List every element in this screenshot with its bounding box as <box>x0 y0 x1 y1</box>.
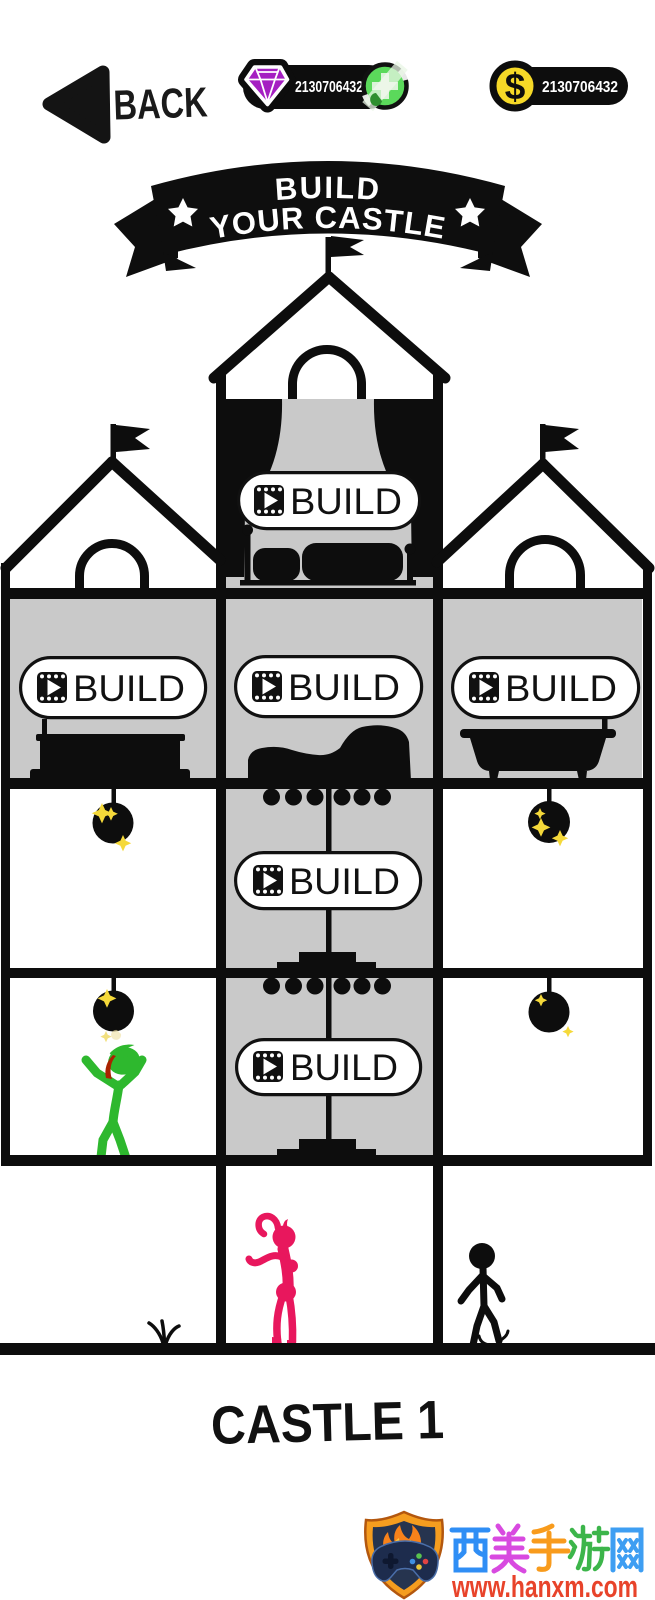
svg-text:$: $ <box>505 66 526 107</box>
svg-text:www.hanxm.com: www.hanxm.com <box>451 1569 638 1600</box>
svg-text:BUILD: BUILD <box>73 668 185 709</box>
svg-text:BUILD: BUILD <box>289 861 400 902</box>
svg-text:2130706432: 2130706432 <box>295 79 363 96</box>
svg-text:BACK: BACK <box>113 78 209 128</box>
svg-text:2130706432: 2130706432 <box>542 79 618 96</box>
svg-text:BUILD: BUILD <box>505 668 617 709</box>
svg-text:BUILD: BUILD <box>290 1047 398 1088</box>
svg-text:BUILD: BUILD <box>290 481 402 522</box>
svg-text:BUILD: BUILD <box>288 667 400 708</box>
svg-text:CASTLE 1: CASTLE 1 <box>210 1390 444 1456</box>
